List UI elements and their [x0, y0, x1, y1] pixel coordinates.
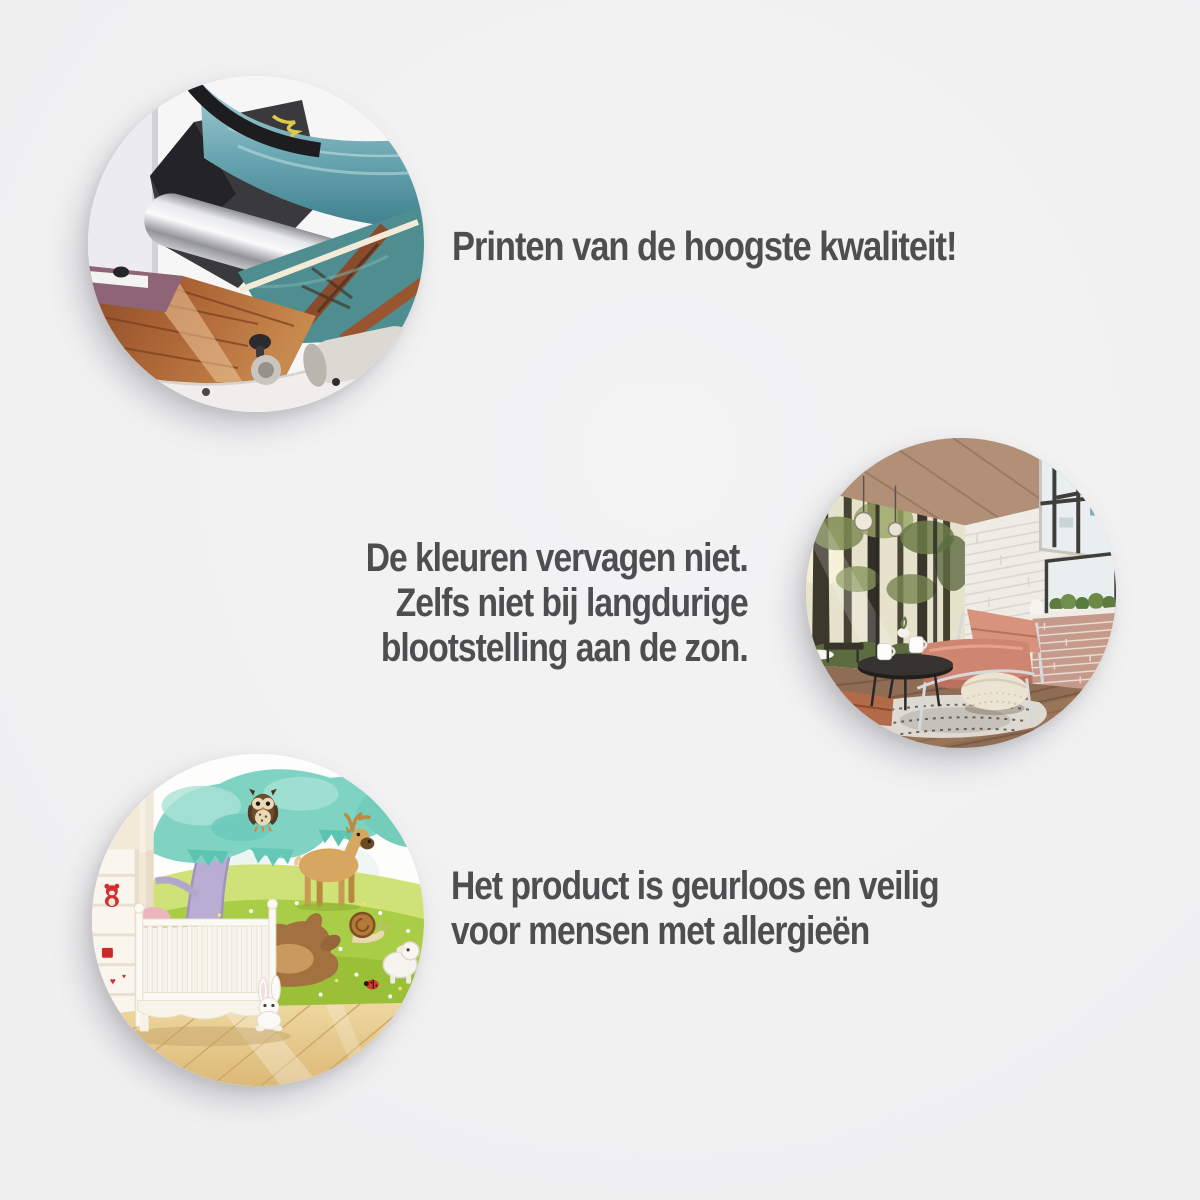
- printing-machine-photo: [88, 76, 424, 412]
- knitted-pouf: [961, 672, 1029, 715]
- forest-wallpaper-interior-photo: [806, 438, 1116, 748]
- feature-line: Het product is geurloos en veilig: [451, 864, 939, 909]
- red-cup: [102, 948, 113, 958]
- svg-text:♥: ♥: [122, 974, 126, 981]
- feature-line: Zelfs niet bij langdurige: [366, 581, 748, 626]
- coffee-mug: [909, 637, 926, 653]
- feature-line: De kleuren vervagen niet.: [366, 536, 748, 581]
- nursery-illustration: ♥ ♥: [92, 754, 424, 1086]
- coffee-mug: [878, 644, 895, 660]
- window-top: [1040, 438, 1116, 559]
- feature-line: Printen van de hoogste kwaliteit!: [452, 223, 956, 269]
- feature-text-odorless: Het product is geurloos en veilig voor m…: [451, 864, 939, 954]
- product-info-panel: Printen van de hoogste kwaliteit!: [0, 0, 1200, 1200]
- printing-machine-illustration: [88, 76, 424, 412]
- crib: [134, 899, 277, 1031]
- pendant-lamp: [855, 513, 873, 531]
- feature-line: voor mensen met allergieën: [451, 909, 939, 954]
- bench: [824, 643, 864, 650]
- feature-text-colors-no-fade: De kleuren vervagen niet. Zelfs niet bij…: [366, 536, 748, 671]
- feature-text-print-quality: Printen van de hoogste kwaliteit!: [452, 223, 956, 269]
- shelf-unit: ♥ ♥: [92, 849, 139, 1012]
- forest-interior-illustration: [806, 438, 1116, 748]
- heart-decor: ♥: [110, 977, 116, 988]
- feature-line: blootstelling aan de zon.: [366, 626, 748, 671]
- nursery-wallpaper-photo: ♥ ♥: [92, 754, 424, 1086]
